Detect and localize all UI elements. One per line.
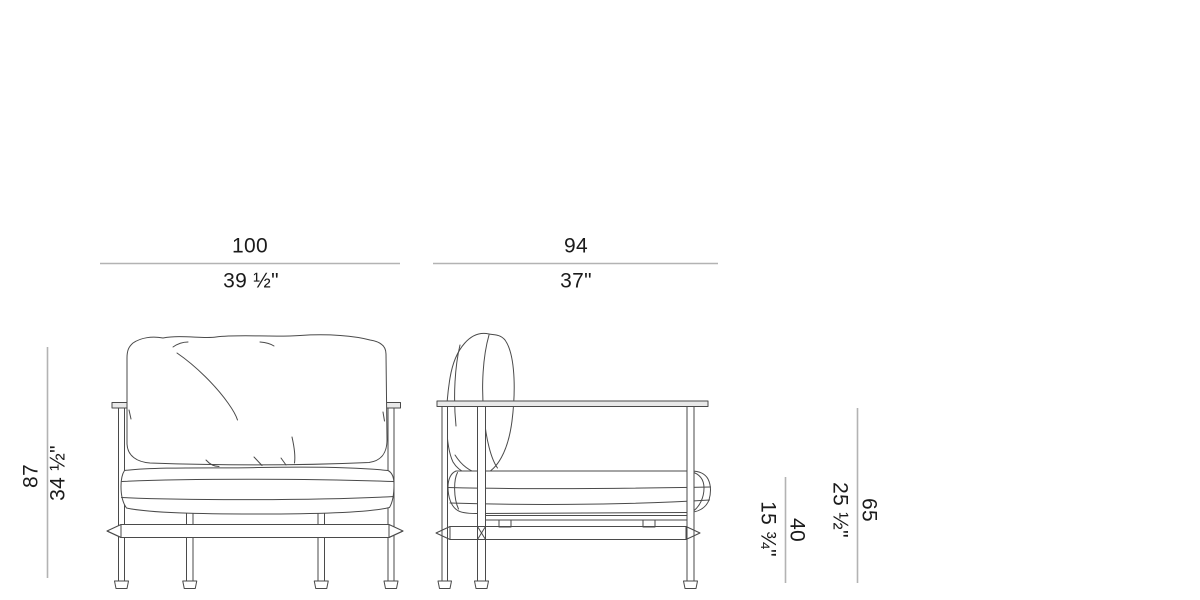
width-dimension-cm: 100 — [232, 236, 268, 257]
arm-height-dimension-inches: 25 ½" — [830, 482, 851, 538]
dimension-sheet: 100 39 ½" 94 37" 87 34 ½" 65 25 ½" 40 15… — [0, 0, 1200, 600]
height-dimension-cm: 87 — [21, 464, 42, 488]
depth-dimension-cm: 94 — [564, 236, 588, 257]
seat-height-dimension-inches: 15 ¾" — [758, 501, 779, 557]
front-view-drawing — [107, 335, 403, 589]
width-dimension-inches: 39 ½" — [223, 271, 279, 292]
arm-height-dimension-cm: 65 — [859, 498, 880, 522]
side-view-drawing — [436, 333, 711, 588]
height-dimension-inches: 34 ½" — [48, 445, 69, 501]
drawing-canvas — [0, 0, 1200, 600]
seat-height-dimension-cm: 40 — [787, 518, 808, 542]
depth-dimension-inches: 37" — [560, 271, 592, 292]
